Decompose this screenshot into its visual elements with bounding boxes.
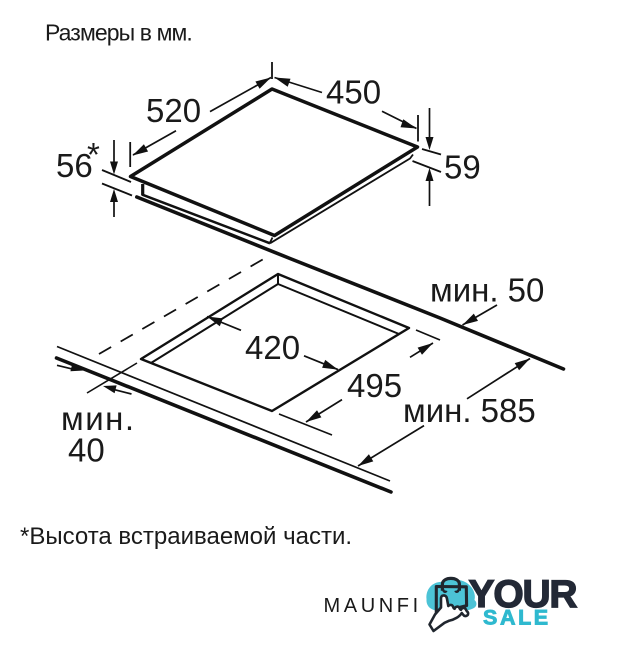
svg-text:495: 495 [347,367,402,404]
svg-text:MAUNFI: MAUNFI [324,595,422,617]
svg-text:59: 59 [444,149,481,186]
svg-text:SALE: SALE [483,606,551,630]
svg-text:*Высота встраиваемой части.: *Высота встраиваемой части. [20,523,352,550]
svg-text:40: 40 [68,432,105,469]
svg-text:Размеры в мм.: Размеры в мм. [45,20,192,46]
svg-text:мин. 585: мин. 585 [403,392,536,429]
svg-text:520: 520 [146,92,201,129]
svg-text:450: 450 [326,74,381,111]
svg-text:420: 420 [245,329,300,366]
svg-text:мин. 50: мин. 50 [430,272,544,309]
svg-text:*: * [87,136,100,173]
